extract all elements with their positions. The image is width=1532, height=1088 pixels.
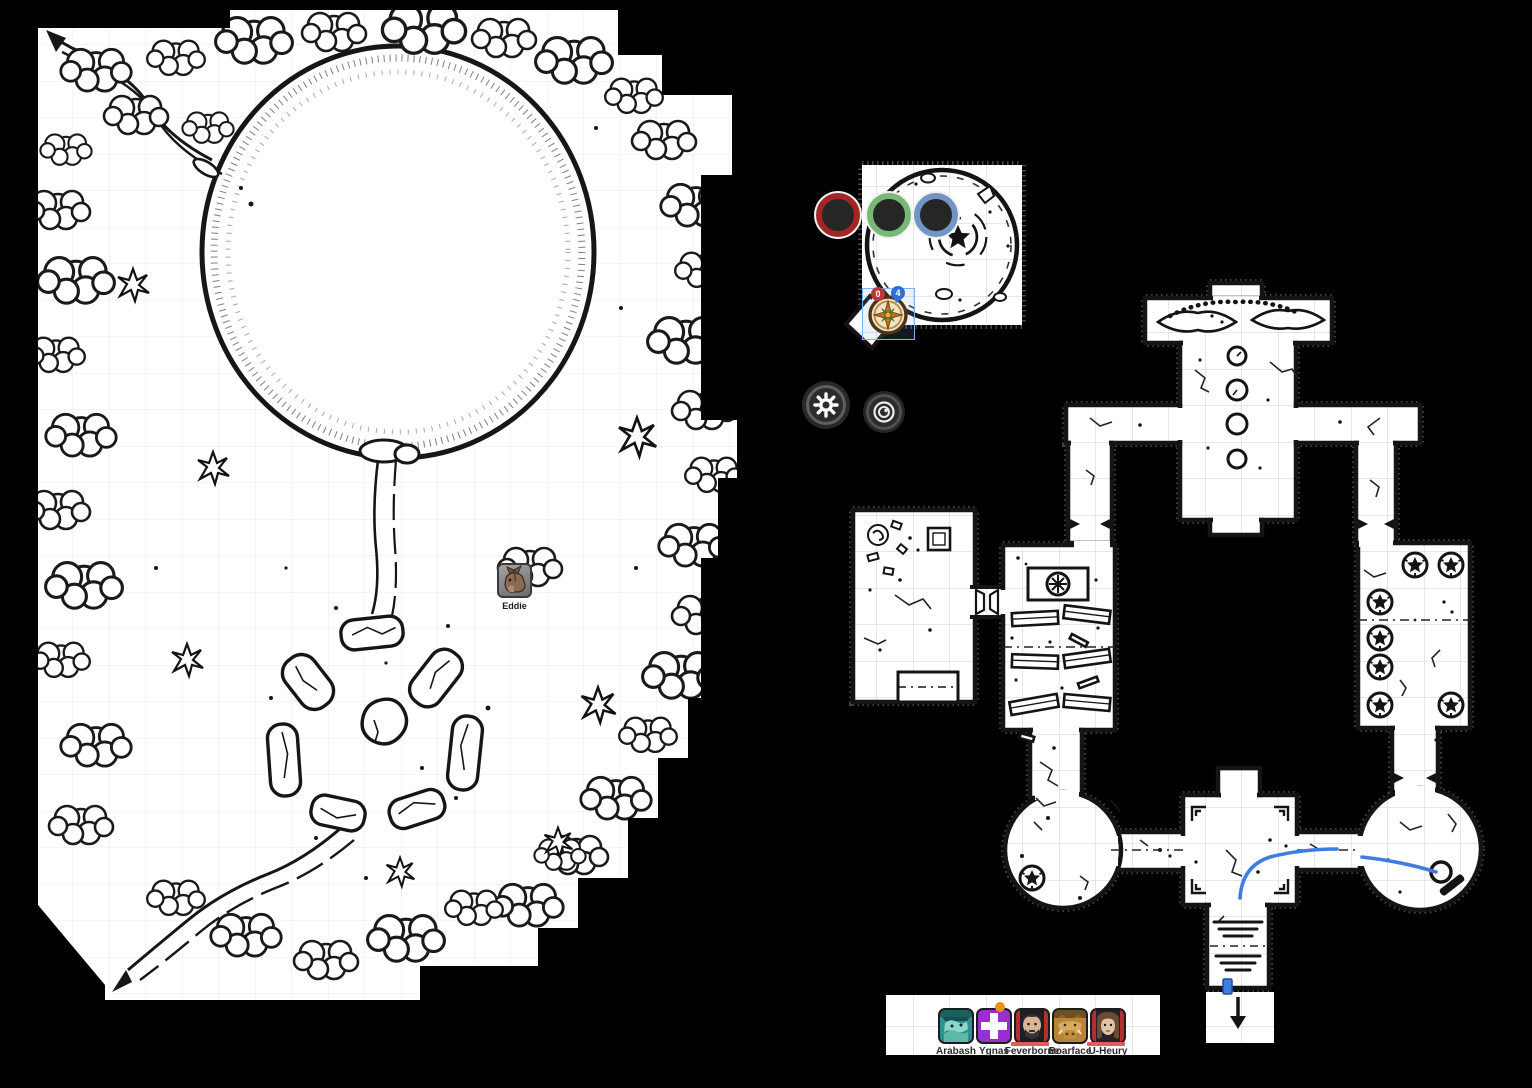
compass-token[interactable] [867,294,909,336]
settings-button[interactable] [806,385,846,425]
uheury-avatar-icon [1092,1010,1124,1042]
portrait-boarface[interactable] [1052,1008,1088,1044]
blue-ring-token[interactable] [914,193,958,237]
forest-map-drawing [36,8,738,1008]
dungeon-map-canvas[interactable] [840,150,1485,1055]
party-name-uheury: U-Heury [1073,1046,1143,1057]
capture-button[interactable] [866,394,902,430]
forest-map-canvas[interactable] [36,8,738,1008]
ygnas-avatar-icon [978,1010,1010,1042]
donkey-icon [499,565,530,596]
pond [202,46,594,463]
compass-icon [867,294,909,336]
arabash-avatar-icon [940,1010,972,1042]
door-marker[interactable] [1223,979,1232,994]
token-selection-box[interactable]: 0 4 [862,288,915,340]
portrait-arabash[interactable] [938,1008,974,1044]
eddie-token-label: Eddie [487,601,542,611]
ygnas-notification-badge [995,1002,1005,1012]
red-ring-token[interactable] [816,193,860,237]
boarface-avatar-icon [1054,1010,1086,1042]
gear-icon [813,392,839,418]
forest-map-ground [36,8,738,1008]
token-badge-right[interactable]: 4 [891,286,905,300]
green-ring-token[interactable] [867,193,911,237]
star-tile-room [1358,539,1470,792]
token-badge-left[interactable]: 0 [871,287,885,301]
eddie-token[interactable] [497,563,532,598]
vtt-stage: 0 4 Eddie [0,0,1532,1088]
ruined-room [853,510,1003,702]
portrait-ygnas[interactable] [976,1008,1012,1044]
chapel-room [1000,541,1115,798]
feverborne-avatar-icon [1016,1010,1048,1042]
portrait-feverborne[interactable] [1014,1008,1050,1044]
wheel-glyph [1047,573,1069,595]
shrine-room [1066,283,1420,543]
dungeon-map-drawing [840,150,1485,1055]
floor-star-glyph [1020,866,1044,890]
lens-icon [871,399,897,425]
portrait-uheury[interactable] [1090,1008,1126,1044]
